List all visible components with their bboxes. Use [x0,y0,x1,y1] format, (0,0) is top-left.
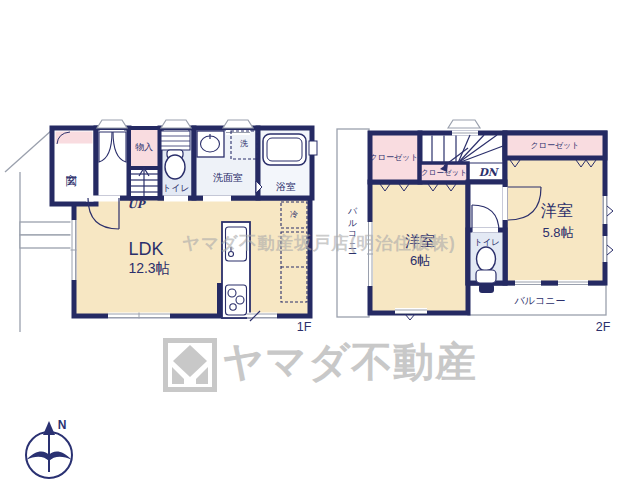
window-bump-2f [448,120,480,136]
label-ldk: LDK [128,240,163,258]
label-toilet-1f: トイレ [162,184,190,193]
label-floor1: 1F [297,321,312,334]
stove-icon [226,285,247,315]
label-bedroom58-size: 5.8帖 [542,226,573,239]
yamada-logo-text: ヤマダ不動産 [222,342,477,383]
label-washer: 洗 [240,140,248,148]
compass-north-label: N [58,418,67,432]
label-ldk-size: 12.3帖 [128,261,169,275]
label-bedroom6-size: 6帖 [410,254,430,267]
label-toilet-2f: トイレ [474,238,500,247]
label-bedroom58: 洋室 [541,203,573,219]
label-closet-mid: クローゼット [421,169,467,177]
label-stairs-down: DN [479,167,498,178]
washroom-door-gap [203,196,231,202]
label-balcony-bottom: バルコニー [515,296,566,306]
label-fridge: 冷 [290,211,298,219]
watermark-text: ヤマダ不動産坂戸店(明治住販株) [182,231,456,255]
label-floor2: 2F [596,321,611,334]
label-washroom: 洗面室 [213,173,243,183]
label-bath: 浴室 [276,182,296,192]
sink-icon [197,131,224,157]
label-monoire: 物入 [135,143,153,152]
label-closet-left: クローゼット [370,154,419,162]
label-stairs-up: UP [127,199,144,210]
label-closet-right: クローゼット [531,142,580,150]
room-ldk [74,198,310,316]
yamada-logo-icon [166,341,215,390]
window-bumps-1f [97,120,253,128]
floorplan-canvas: 玄関 物入 UP トイレ 洗面室 洗 浴室 LDK 12.3帖 冷 1F クロー… [0,0,640,480]
label-genkan: 玄関 [66,165,77,169]
